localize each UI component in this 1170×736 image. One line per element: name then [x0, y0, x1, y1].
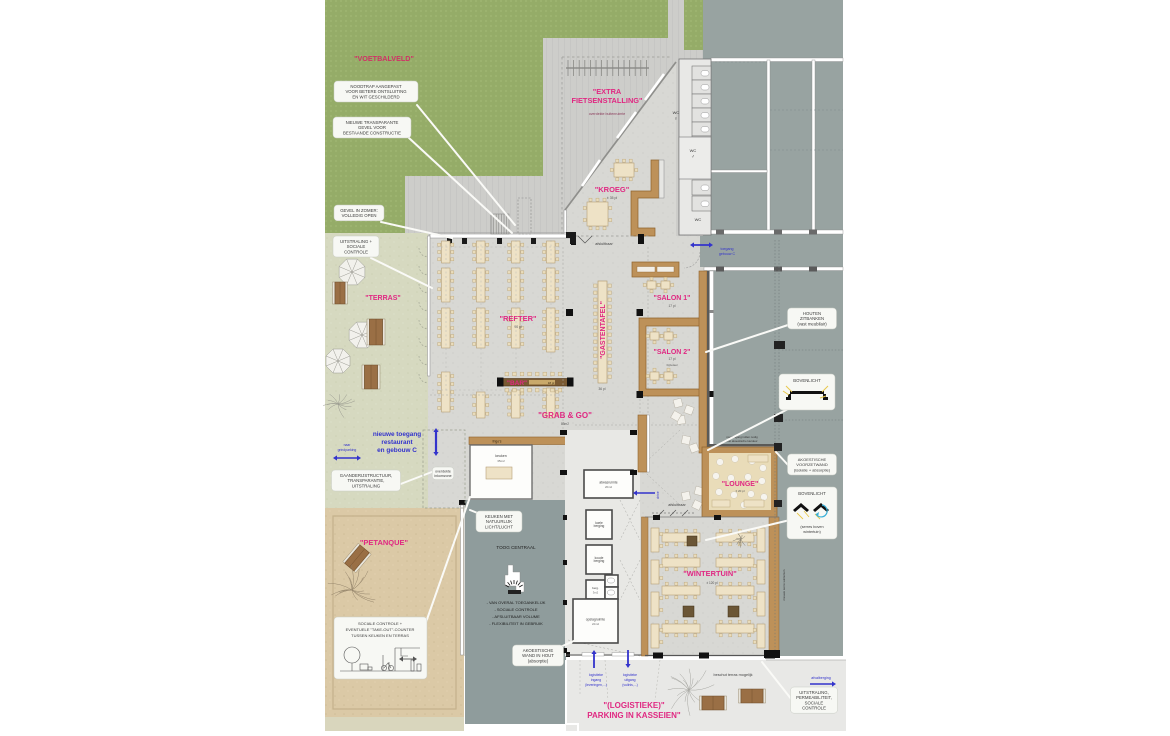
svg-text:opslagruimte: opslagruimte: [586, 618, 606, 622]
svg-text:EN WIT GESCHILDERD: EN WIT GESCHILDERD: [352, 94, 399, 99]
svg-text:bijzetsel: bijzetsel: [667, 363, 678, 367]
svg-text:- VAN OVERAL TOEGANKELIJK: - VAN OVERAL TOEGANKELIJK: [487, 600, 546, 605]
svg-text:beschut terras mogelijk: beschut terras mogelijk: [713, 673, 752, 677]
svg-text:"BAR": "BAR": [507, 380, 527, 387]
svg-text:nieuwe toegang: nieuwe toegang: [373, 431, 421, 438]
svg-text:overdekte buitenruimte: overdekte buitenruimte: [589, 112, 626, 116]
svg-text:BOVENLICHT: BOVENLICHT: [793, 378, 821, 383]
svg-text:"TERRAS": "TERRAS": [365, 295, 400, 302]
svg-text:uitgang: uitgang: [624, 678, 635, 682]
svg-text:17 pl: 17 pl: [669, 304, 676, 308]
svg-text:"GASTENTAFEL": "GASTENTAFEL": [600, 301, 607, 359]
svg-text:20m2: 20m2: [605, 485, 612, 489]
svg-text:CONTROLE: CONTROLE: [802, 706, 826, 711]
svg-text:PARKING IN KASSEIEN": PARKING IN KASSEIEN": [587, 711, 681, 720]
svg-text:"LOUNGE": "LOUNGE": [722, 481, 759, 488]
svg-text:wintertuin): wintertuin): [803, 530, 821, 534]
svg-text:restaurant: restaurant: [381, 439, 413, 446]
svg-text:(absorptie): (absorptie): [528, 658, 549, 663]
svg-text:keuken: keuken: [495, 454, 507, 458]
svg-text:± 20 pl: ± 20 pl: [736, 489, 745, 493]
svg-text:♂: ♂: [691, 154, 695, 160]
svg-text:berging: berging: [594, 559, 605, 563]
svg-text:VOLLEDIG OPEN: VOLLEDIG OPEN: [342, 213, 377, 218]
svg-text:UITSTRALING: UITSTRALING: [352, 483, 381, 488]
svg-text:(isolatie + absorptie): (isolatie + absorptie): [794, 467, 831, 472]
svg-text:met akoestische kierdeur: met akoestische kierdeur: [726, 439, 757, 443]
svg-text:LICHT/LUCHT: LICHT/LUCHT: [485, 524, 513, 529]
svg-text:EVENTUELE "TAKE-OUT"-COUNTER: EVENTUELE "TAKE-OUT"-COUNTER: [346, 627, 415, 632]
svg-text:- SOCIALE CONTROLE: - SOCIALE CONTROLE: [494, 607, 537, 612]
svg-text:"GRAB & GO": "GRAB & GO": [538, 411, 592, 420]
svg-text:overdekte: overdekte: [435, 470, 451, 474]
svg-text:WC: WC: [695, 217, 702, 222]
svg-text:35m2: 35m2: [497, 459, 505, 463]
svg-text:(serres boven: (serres boven: [800, 525, 823, 529]
svg-text:"PETANQUE": "PETANQUE": [360, 538, 409, 547]
svg-text:naar: naar: [344, 443, 352, 447]
svg-text:afvalberging: afvalberging: [811, 676, 831, 680]
svg-text:22m2: 22m2: [592, 622, 599, 626]
svg-text:(vast meubilair): (vast meubilair): [797, 321, 827, 326]
svg-text:afsluitbaar: afsluitbaar: [595, 242, 613, 246]
svg-text:85m2: 85m2: [561, 422, 569, 426]
svg-text:- AFSLUITBAAR VOLUME: - AFSLUITBAAR VOLUME: [492, 614, 540, 619]
svg-text:(vuilnis,...): (vuilnis,...): [622, 683, 637, 687]
svg-text:WC: WC: [673, 110, 680, 115]
svg-text:toegang: toegang: [721, 247, 734, 251]
svg-text:inkomzone: inkomzone: [434, 474, 451, 478]
svg-text:"KROEG": "KROEG": [595, 185, 630, 194]
svg-text:17 pl: 17 pl: [669, 357, 676, 361]
svg-text:BOVENLICHT: BOVENLICHT: [798, 491, 826, 496]
svg-text:♀: ♀: [674, 116, 678, 122]
svg-text:WC: WC: [690, 148, 697, 153]
svg-text:FIETSENSTALLING": FIETSENSTALLING": [571, 96, 643, 105]
svg-text:ingang: ingang: [591, 678, 601, 682]
svg-text:TOOG CENTRAAL: TOOG CENTRAAL: [496, 545, 536, 550]
svg-text:berging: berging: [594, 524, 605, 528]
svg-text:afwasruimte: afwasruimte: [599, 481, 617, 485]
svg-text:berg.: berg.: [592, 586, 599, 590]
svg-text:"SALON 2": "SALON 2": [654, 349, 691, 356]
svg-text:"REFTER": "REFTER": [499, 314, 537, 323]
svg-text:"SALON 1": "SALON 1": [654, 295, 691, 302]
svg-text:90 pl: 90 pl: [514, 325, 522, 329]
svg-text:logistieke: logistieke: [589, 673, 603, 677]
svg-text:- FLEXIBILITEIT IN GEBRUIK: - FLEXIBILITEIT IN GEBRUIK: [489, 621, 543, 626]
svg-text:"VOETBALVELD": "VOETBALVELD": [354, 54, 414, 63]
svg-text:en gebouw C: en gebouw C: [377, 447, 417, 454]
svg-text:gebouw C: gebouw C: [719, 252, 736, 256]
svg-text:"(LOGISTIEKE)": "(LOGISTIEKE)": [603, 701, 665, 710]
svg-text:"WINTERTUIN": "WINTERTUIN": [683, 569, 737, 578]
svg-text:± 120 pl: ± 120 pl: [706, 581, 718, 585]
svg-text:drive: drive: [656, 491, 660, 498]
svg-text:± 35 pl: ± 35 pl: [607, 196, 617, 200]
svg-text:logistieke: logistieke: [623, 673, 637, 677]
svg-text:3m2: 3m2: [593, 591, 599, 595]
svg-text:frigo's: frigo's: [493, 440, 502, 444]
svg-text:nieuwe serre wintertuin: nieuwe serre wintertuin: [782, 569, 786, 600]
svg-text:CONTROLE: CONTROLE: [344, 249, 368, 254]
svg-text:grindparking: grindparking: [338, 448, 357, 452]
svg-text:afsluitbaar: afsluitbaar: [668, 503, 686, 507]
svg-text:18 pl: 18 pl: [548, 381, 555, 385]
svg-text:36 pl: 36 pl: [599, 387, 606, 391]
svg-text:BESTAANDE CONSTRUCTIE: BESTAANDE CONSTRUCTIE: [343, 130, 401, 135]
svg-text:(leveringen,...): (leveringen,...): [585, 683, 607, 687]
svg-text:"EXTRA: "EXTRA: [593, 87, 622, 96]
svg-text:SOCIALE CONTROLE +: SOCIALE CONTROLE +: [358, 621, 403, 626]
svg-text:TUSSEN KEUKEN EN TERRAS: TUSSEN KEUKEN EN TERRAS: [351, 633, 409, 638]
